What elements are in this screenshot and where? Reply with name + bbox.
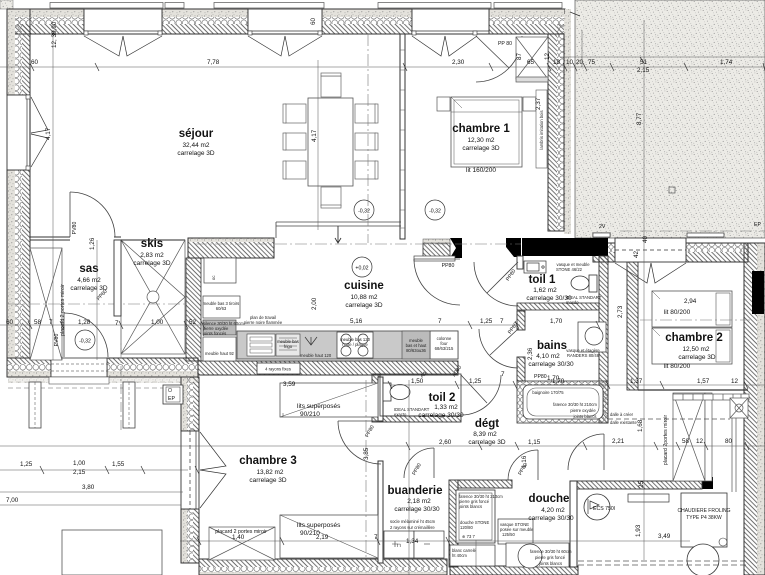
svg-text:carrelage 3D: carrelage 3D [678, 354, 716, 361]
svg-text:ECS 750l: ECS 750l [593, 506, 615, 512]
svg-text:pierre oxydée: pierre oxydée [570, 408, 596, 413]
svg-text:8,77: 8,77 [636, 112, 643, 125]
svg-text:2,18 m2: 2,18 m2 [407, 498, 431, 505]
svg-text:carrelage 30/30: carrelage 30/30 [418, 412, 464, 419]
svg-text:toil 2: toil 2 [429, 392, 456, 404]
svg-text:2,19: 2,19 [316, 534, 329, 541]
svg-text:10,88 m2: 10,88 m2 [350, 294, 377, 301]
svg-text:3,85: 3,85 [363, 447, 370, 460]
svg-text:joints blancs: joints blancs [572, 414, 596, 419]
svg-text:joints blancs: joints blancs [538, 561, 562, 566]
svg-text:1,00: 1,00 [73, 460, 86, 467]
svg-text:sas: sas [79, 263, 98, 275]
svg-text:20: 20 [576, 59, 584, 66]
svg-text:2V: 2V [599, 224, 606, 230]
svg-text:CHAUDIERE FROLING: CHAUDIERE FROLING [677, 508, 730, 514]
svg-text:65: 65 [527, 59, 535, 66]
svg-text:12: 12 [544, 52, 551, 60]
svg-text:8,39 m2: 8,39 m2 [473, 431, 497, 438]
svg-text:2,00: 2,00 [311, 297, 318, 310]
svg-text:RANDERS 80/46: RANDERS 80/46 [567, 353, 600, 358]
svg-text:2,73: 2,73 [617, 305, 624, 318]
svg-text:4,20 m2: 4,20 m2 [541, 507, 565, 514]
svg-text:lambris imitation bois: lambris imitation bois [539, 110, 544, 149]
svg-text:lit 80/200: lit 80/200 [664, 363, 691, 370]
svg-text:carrelage 3D: carrelage 3D [345, 302, 383, 309]
svg-text:12, 39,90: 12, 39,90 [51, 21, 58, 48]
svg-text:PP80: PP80 [442, 263, 455, 269]
svg-text:80: 80 [725, 438, 733, 445]
svg-text:1,25: 1,25 [469, 378, 482, 385]
svg-text:carrelage 30/30: carrelage 30/30 [528, 515, 574, 522]
svg-text:25: 25 [638, 480, 645, 488]
svg-text:4,66 m2: 4,66 m2 [77, 277, 101, 284]
svg-text:joints foncés: joints foncés [202, 331, 226, 336]
svg-text:2,37: 2,37 [535, 97, 542, 110]
svg-text:meuble haut 120: meuble haut 120 [300, 353, 332, 358]
svg-text:7,00: 7,00 [6, 497, 19, 504]
svg-text:7: 7 [49, 319, 53, 326]
svg-text:joints blancs: joints blancs [458, 504, 482, 509]
svg-text:oc: oc [211, 276, 216, 280]
svg-text:12: 12 [696, 438, 704, 445]
svg-text:75: 75 [588, 59, 596, 66]
svg-text:carrelage 3D: carrelage 3D [468, 439, 506, 446]
svg-text:TYPE P4 38KW: TYPE P4 38KW [686, 515, 722, 521]
svg-text:42: 42 [633, 250, 640, 258]
svg-text:125/50: 125/50 [502, 532, 515, 537]
svg-text:60: 60 [6, 319, 14, 326]
svg-text:4,17: 4,17 [45, 127, 52, 140]
svg-text:60/63: 60/63 [216, 306, 227, 311]
svg-text:2,60: 2,60 [439, 439, 452, 446]
svg-text:60: 60 [31, 59, 39, 66]
svg-text:12,30 m2: 12,30 m2 [467, 137, 494, 144]
svg-text:ht 40cm: ht 40cm [452, 553, 467, 558]
svg-text:lit 80/200: lit 80/200 [664, 309, 691, 316]
svg-text:douche: douche [529, 493, 570, 505]
svg-text:cuisine: cuisine [344, 280, 384, 292]
svg-text:PP 80: PP 80 [498, 41, 512, 47]
svg-text:13,82 m2: 13,82 m2 [256, 469, 283, 476]
svg-text:1,26: 1,26 [89, 237, 96, 250]
svg-text:1,55: 1,55 [112, 461, 125, 468]
svg-text:1,68: 1,68 [637, 419, 644, 432]
svg-text:58: 58 [682, 438, 690, 445]
svg-text:68/63/215: 68/63/215 [435, 346, 454, 351]
svg-text:PV80: PV80 [54, 334, 60, 347]
svg-text:1,25: 1,25 [480, 318, 493, 325]
svg-text:2,94: 2,94 [684, 298, 697, 305]
svg-text:58: 58 [34, 319, 42, 326]
svg-text:skis: skis [141, 238, 163, 250]
svg-text:pierre gris foncé: pierre gris foncé [535, 555, 566, 560]
svg-text:+0,02: +0,02 [355, 266, 368, 272]
svg-text:4 rayons fixes: 4 rayons fixes [265, 367, 291, 372]
svg-text:hotte / plaque: hotte / plaque [342, 342, 368, 347]
svg-text:18: 18 [553, 59, 561, 66]
svg-text:2,21: 2,21 [612, 438, 625, 445]
svg-text:1,34: 1,34 [406, 538, 419, 545]
svg-text:carrelage 30/30: carrelage 30/30 [528, 361, 574, 368]
svg-text:bains: bains [537, 340, 567, 352]
svg-text:lits superposés: lits superposés [297, 403, 341, 410]
svg-text:2,36: 2,36 [527, 347, 534, 360]
svg-text:EP: EP [168, 396, 175, 402]
svg-text:meuble haut 92: meuble haut 92 [205, 351, 235, 356]
svg-text:3,49: 3,49 [658, 533, 671, 540]
svg-text:séjour: séjour [179, 128, 214, 140]
svg-text:1,57: 1,57 [697, 378, 710, 385]
svg-text:faïence 30/30 ht 60cm: faïence 30/30 ht 60cm [530, 549, 572, 554]
svg-text:2,83 m2: 2,83 m2 [140, 252, 164, 259]
svg-text:80/63ou36: 80/63ou36 [406, 348, 426, 353]
svg-text:EP: EP [754, 222, 761, 228]
svg-text:1,15: 1,15 [528, 439, 541, 446]
svg-text:1,28: 1,28 [78, 319, 91, 326]
svg-text:3,80: 3,80 [82, 484, 95, 491]
svg-text:2 rayons sur crémaillère: 2 rayons sur crémaillère [390, 525, 435, 530]
svg-text:buanderie: buanderie [388, 485, 443, 497]
svg-text:1,93: 1,93 [635, 524, 642, 537]
svg-text:32,44 m2: 32,44 m2 [182, 142, 209, 149]
svg-text:7,78: 7,78 [207, 59, 220, 66]
svg-text:PV80: PV80 [72, 222, 78, 235]
svg-text:chambre 1: chambre 1 [452, 123, 510, 135]
svg-text:7: 7 [115, 320, 119, 327]
svg-text:5,16: 5,16 [350, 318, 363, 325]
svg-text:1,37: 1,37 [630, 378, 643, 385]
svg-text:2,30: 2,30 [452, 59, 465, 66]
svg-text:12,50 m2: 12,50 m2 [682, 346, 709, 353]
svg-text:⊕ 73 7: ⊕ 73 7 [462, 534, 475, 539]
svg-text:4,17: 4,17 [311, 129, 318, 142]
svg-text:1,25: 1,25 [20, 461, 33, 468]
svg-text:carrelage 3D: carrelage 3D [177, 150, 215, 157]
svg-text:52: 52 [189, 319, 197, 326]
svg-text:2,15: 2,15 [637, 67, 650, 74]
svg-text:1,40: 1,40 [232, 534, 245, 541]
svg-text:carrelage 3D: carrelage 3D [462, 145, 500, 152]
svg-text:87: 87 [516, 52, 523, 60]
svg-text:2,15: 2,15 [73, 469, 86, 476]
svg-text:4,10 m2: 4,10 m2 [536, 353, 560, 360]
svg-text:pierre noire flammée: pierre noire flammée [244, 320, 283, 325]
svg-text:60: 60 [310, 17, 317, 25]
svg-text:-0,32: -0,32 [79, 339, 91, 345]
svg-text:STONE 46/22: STONE 46/22 [556, 267, 583, 272]
svg-text:⊓: ⊓ [397, 543, 401, 549]
svg-text:lit 160/200: lit 160/200 [466, 167, 496, 174]
svg-text:dalle existante: dalle existante [610, 420, 637, 425]
svg-text:1,50: 1,50 [411, 378, 424, 385]
svg-text:12: 12 [731, 378, 739, 385]
svg-text:toil 1: toil 1 [529, 274, 556, 286]
svg-text:baignoire 170/75: baignoire 170/75 [532, 390, 564, 395]
svg-text:placard 2portes miroir: placard 2portes miroir [663, 415, 669, 465]
svg-text:1,70: 1,70 [550, 318, 563, 325]
svg-text:1,70: 1,70 [547, 375, 560, 382]
svg-text:1,00: 1,00 [151, 319, 164, 326]
svg-text:7: 7 [438, 318, 442, 325]
svg-text:macdo: macdo [566, 300, 579, 305]
svg-text:7: 7 [500, 318, 504, 325]
svg-text:120/80: 120/80 [460, 525, 473, 530]
svg-text:faïence 30/30 ht 210cm: faïence 30/30 ht 210cm [553, 402, 597, 407]
svg-text:chambre 3: chambre 3 [239, 455, 297, 467]
svg-text:3,59: 3,59 [283, 381, 296, 388]
svg-text:1,74: 1,74 [720, 59, 733, 66]
svg-text:dalle à créer: dalle à créer [610, 412, 634, 417]
svg-text:-0,32: -0,32 [429, 209, 441, 215]
svg-text:40: 40 [642, 235, 649, 243]
svg-text:1,33 m2: 1,33 m2 [434, 404, 458, 411]
svg-text:frigo: frigo [284, 344, 293, 349]
svg-text:90/210: 90/210 [300, 411, 320, 418]
svg-text:carrelage 30/30: carrelage 30/30 [394, 506, 440, 513]
svg-text:dégt: dégt [475, 418, 499, 430]
svg-text:1,62 m2: 1,62 m2 [533, 287, 557, 294]
svg-text:chambre 2: chambre 2 [665, 332, 723, 344]
svg-text:carrelage 3D: carrelage 3D [249, 477, 287, 484]
svg-text:socle mélaminé ht 45cm: socle mélaminé ht 45cm [390, 519, 436, 524]
svg-text:7: 7 [501, 371, 505, 378]
svg-text:placard 2 portes miroir: placard 2 portes miroir [60, 284, 66, 336]
svg-text:10: 10 [566, 59, 574, 66]
svg-text:lits superposés: lits superposés [297, 522, 341, 529]
svg-text:carrelage 3D: carrelage 3D [133, 260, 171, 267]
svg-text:PP80: PP80 [534, 374, 547, 380]
svg-text:1,16: 1,16 [521, 455, 528, 468]
svg-text:exacto: exacto [394, 412, 407, 417]
